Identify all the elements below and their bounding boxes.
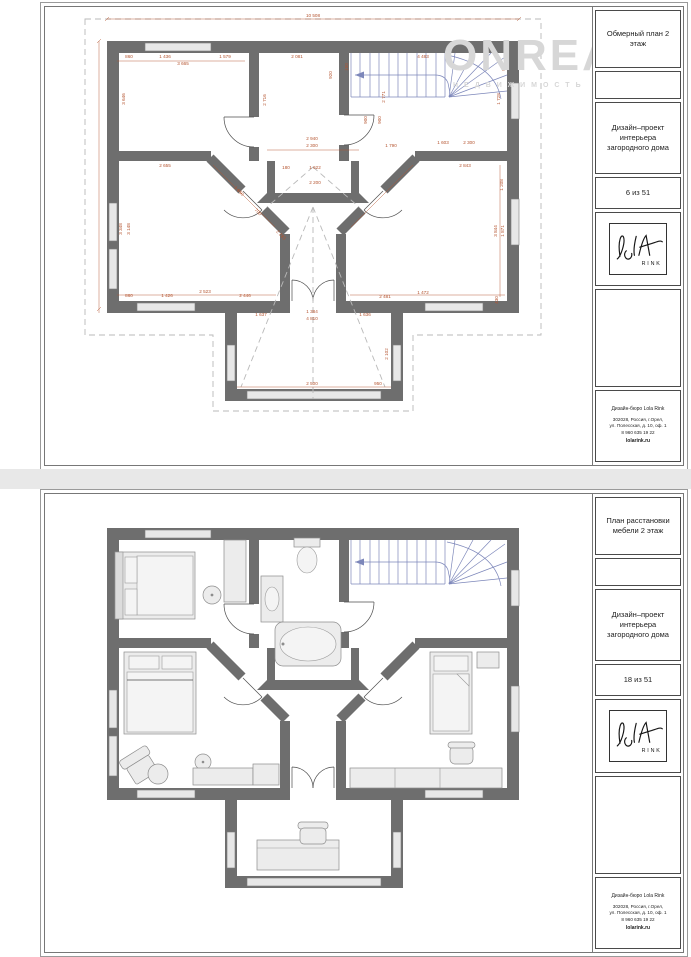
dimension-label: 1 871 (500, 225, 505, 237)
bureau-name: Дизайн-бюро Lola Rink (612, 406, 665, 413)
sheet2-frame: План расстановки мебели 2 этаж Дизайн–пр… (44, 493, 684, 953)
sheet2-blank-cell (595, 776, 681, 874)
dimension-label: 900 (377, 116, 382, 124)
logo-caption: RINK (642, 261, 662, 267)
sheet1-logo-cell: RINK (595, 212, 681, 286)
bureau-address2: ул. Полесская, д. 10, оф. 1 (609, 423, 666, 430)
dimension-label: 900 (501, 63, 506, 71)
dimension-label: 2 716 (262, 94, 267, 106)
furniture (115, 538, 502, 870)
dimension-label: 2 655 (159, 163, 171, 168)
dimension-label: 2 771 (381, 91, 386, 103)
dimension-label: 3 148 (126, 223, 131, 235)
dimension-label: 3 665 (177, 61, 189, 66)
furniture-shelf (477, 652, 499, 668)
sheet2-empty-cell (595, 558, 681, 586)
sheet-measurement-plan: 10 5088601 4361 5793 6652 0819204 483900… (40, 2, 688, 470)
furniture-bathtub (275, 622, 341, 666)
sheet2-project-name: Дизайн–проект интерьера загородного дома (595, 589, 681, 661)
bureau-phone-2: 8 960 635 19 22 (621, 917, 654, 924)
dimension-label: 4 810 (306, 316, 318, 321)
logo-signature (617, 236, 624, 259)
dimension-label: 860 (125, 54, 133, 59)
sheet1-drawing-area: 10 5088601 4361 5793 6652 0819204 483900… (45, 7, 592, 465)
dimension-label: 1 790 (385, 143, 397, 148)
dimension-label: 2 843 (459, 163, 471, 168)
bureau-name-2: Дизайн-бюро Lola Rink (612, 893, 665, 900)
furniture-bed-1 (115, 552, 195, 619)
dimension-label: 1 472 (417, 290, 429, 295)
dimension-label: 2 081 (291, 54, 303, 59)
dimension-label: 1 603 (437, 140, 449, 145)
bureau-site-2: lolarink.ru (626, 925, 650, 932)
sheet1-bureau-info: Дизайн-бюро Lola Rink 302028, Россия, г.… (595, 390, 681, 462)
sheet1-project-name: Дизайн–проект интерьера загородного дома (595, 102, 681, 174)
dimension-label: 3 348 (118, 223, 123, 235)
sheet2-bureau-info: Дизайн-бюро Lola Rink 302028, Россия, г.… (595, 877, 681, 949)
sheet2-title-block: План расстановки мебели 2 этаж Дизайн–пр… (592, 494, 683, 952)
dimension-label: 2 446 (239, 293, 251, 298)
dimension-label: 1 384 (306, 309, 318, 314)
sheet1-title-block: Обмерный план 2 этаж Дизайн–проект интер… (592, 7, 683, 465)
page: { "colors": { "wall": "#6e6e6e", "window… (0, 0, 691, 910)
sheet1-empty-cell (595, 71, 681, 99)
furniture-sink (261, 576, 283, 622)
furniture-plan-svg (45, 494, 592, 950)
sheet1-plan-title: Обмерный план 2 этаж (595, 10, 681, 68)
dimension-label: 950 (374, 381, 382, 386)
furniture-desk-chair (448, 742, 475, 764)
dimension-label: 1 636 (359, 312, 371, 317)
dimension-label: 1 622 (309, 165, 321, 170)
furniture-desk-long (350, 768, 502, 788)
dimension-label: 860 (125, 293, 133, 298)
dimension-label: 2 300 (463, 140, 475, 145)
dimension-label: 2 523 (199, 289, 211, 294)
dimension-label: 1 436 (159, 54, 171, 59)
roof-overhang-outline (85, 19, 541, 411)
dimension-label: 1 579 (219, 54, 231, 59)
sheet-furniture-plan: План расстановки мебели 2 этаж Дизайн–пр… (40, 489, 688, 957)
dimension-label: 2 481 (379, 294, 391, 299)
lola-rink-logo: RINK (611, 227, 665, 271)
logo-box: RINK (609, 223, 667, 275)
sheet-separator (0, 469, 691, 489)
logo-box-2: RINK (609, 710, 667, 762)
furniture-console (193, 768, 253, 785)
bureau-phone: 8 960 635 19 22 (621, 430, 654, 437)
sheet2-drawing-area (45, 494, 592, 952)
dimension-label: 2 200 (309, 180, 321, 185)
dimension-label: 2 102 (384, 348, 389, 360)
dimension-label: 430 (494, 296, 499, 304)
dimension-label: 4 483 (417, 54, 429, 59)
sheet1-page-number: 6 из 51 (595, 177, 681, 209)
furniture-bed-3 (430, 652, 472, 734)
bureau-address2-2: ул. Полесская, д. 10, оф. 1 (609, 910, 666, 917)
bureau-site: lolarink.ru (626, 438, 650, 445)
dimension-label: 920 (328, 71, 333, 79)
dimension-label: 180 (282, 165, 290, 170)
pouf-button (211, 594, 214, 597)
dimension-label: 1 426 (161, 293, 173, 298)
lola-rink-logo-2: RINK (611, 714, 665, 758)
measurement-plan-svg: 10 5088601 4361 5793 6652 0819204 483900… (45, 7, 592, 463)
sheet2-logo-cell: RINK (595, 699, 681, 773)
sheet1-blank-cell (595, 289, 681, 387)
pouf-2-button (202, 761, 205, 764)
furniture-bay-chair (298, 822, 328, 844)
dimension-label: 2 500 (306, 381, 318, 386)
dimension-label: 900 (363, 116, 368, 124)
furniture-side-table (148, 764, 168, 784)
dimension-label: 3 844 (493, 225, 498, 237)
dimension-label: 1 728 (496, 93, 501, 105)
bureau-address1-2: 302028, Россия, г.Орел, (613, 904, 663, 911)
sheet1-frame: 10 5088601 4361 5793 6652 0819204 483900… (44, 6, 684, 466)
sheet2-plan-title: План расстановки мебели 2 этаж (595, 497, 681, 555)
furniture-wardrobe (224, 540, 246, 602)
furniture-toilet (294, 538, 320, 573)
sheet2-page-number: 18 из 51 (595, 664, 681, 696)
logo-caption-2: RINK (642, 748, 662, 754)
dimension-label: 150 (344, 63, 349, 71)
dimension-label: 1 208 (499, 179, 504, 191)
furniture-bay-desk (257, 840, 339, 870)
furniture-bed-2 (124, 652, 196, 734)
dimension-label: 10 508 (306, 13, 320, 18)
dimension-label: 2 300 (306, 143, 318, 148)
dimension-label: 1 637 (255, 312, 267, 317)
bureau-address1: 302028, Россия, г.Орел, (613, 417, 663, 424)
dimension-label: 2 940 (306, 136, 318, 141)
furniture-dresser (253, 764, 279, 785)
dimension-label: 3 646 (121, 93, 126, 105)
